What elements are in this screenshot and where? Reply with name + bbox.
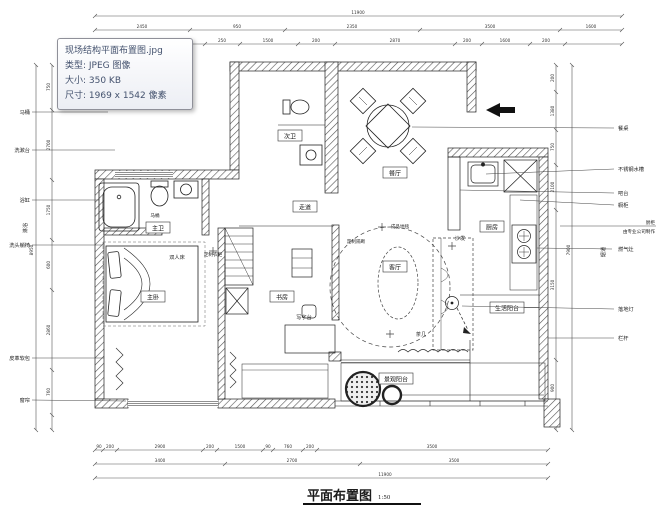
dim: 200 — [463, 38, 471, 43]
label-tea-table: 茶几 — [416, 330, 426, 338]
left-annotations: 马桶 洗漱台 浴缸 洗头躺椅 皮革软包 窗帘 淋浴 — [9, 108, 126, 404]
svg-text:厨房: 厨房 — [486, 224, 498, 232]
tooltip-size: 大小: 350 KB — [65, 74, 185, 89]
dimensions-left-text: 750 2700 1750 600 2860 760 8950 — [29, 83, 51, 396]
room-label-second-bath: 次卫 — [278, 130, 302, 141]
dim-top-overall: 11900 — [351, 10, 365, 15]
walls — [95, 62, 560, 427]
file-info-tooltip: 现场结构平面布置图.jpg 类型: JPEG 图像 大小: 350 KB 尺寸:… — [57, 38, 193, 110]
dim: 3500 — [449, 458, 460, 463]
label-finished-rug: 成品地毯 — [391, 223, 410, 230]
entry-arrow-icon — [486, 103, 515, 117]
tooltip-type: 类型: JPEG 图像 — [65, 59, 185, 74]
drawing-title: 平面布置图 1:50 — [303, 488, 421, 505]
title-scale: 1:50 — [378, 495, 391, 501]
dimensions-right — [554, 63, 574, 432]
dim: 2700 — [287, 458, 298, 463]
dim: 90 — [265, 444, 271, 449]
annotation-leather-padding: 皮革软包 — [9, 354, 30, 362]
svg-text:书房: 书房 — [276, 294, 288, 302]
annotation-hair-wash-chair: 洗头躺椅 — [9, 241, 30, 249]
svg-text:次卫: 次卫 — [284, 133, 296, 141]
dim: 3400 — [155, 458, 166, 463]
svg-text:生活阳台: 生活阳台 — [495, 305, 519, 313]
dim: 200 — [306, 444, 314, 449]
dim-right-overall: 7900 — [566, 244, 571, 255]
svg-text:客厅: 客厅 — [389, 264, 401, 272]
dim: 3150 — [550, 279, 555, 290]
dim: 3500 — [427, 444, 438, 449]
dim: 1600 — [586, 24, 597, 29]
annotation-toilet: 马桶 — [20, 108, 30, 116]
dim: 760 — [284, 444, 292, 449]
dim: 2700 — [46, 139, 51, 150]
study-furniture — [242, 249, 335, 398]
bed-symbol — [103, 242, 205, 326]
svg-text:景观阳台: 景观阳台 — [384, 376, 408, 384]
dim: 200 — [542, 38, 550, 43]
annotation-gas-stove: 燃气灶 — [618, 245, 634, 253]
room-label-corridor: 走道 — [293, 201, 317, 212]
annotation-washstand: 洗漱台 — [14, 146, 30, 154]
windows — [115, 171, 548, 407]
dim: 760 — [46, 388, 51, 396]
dim: 200 — [206, 444, 214, 449]
dimensions-bottom — [93, 448, 550, 480]
room-label-living: 客厅 — [383, 261, 407, 272]
dim: 200 — [550, 74, 555, 82]
dim: 2860 — [46, 324, 51, 335]
annotation-shower: 淋浴 — [21, 222, 29, 233]
dim: 900 — [550, 384, 555, 392]
annotation-note-line2: 由专业公司制作 — [623, 228, 656, 235]
room-label-master-bath: 主卫 — [146, 222, 170, 233]
label-sofa: 沙发 — [455, 234, 465, 242]
tooltip-filename: 现场结构平面布置图.jpg — [65, 44, 185, 59]
dim: 950 — [233, 24, 241, 29]
stove-symbol — [512, 225, 536, 263]
bar-counter-symbol — [448, 157, 460, 230]
title-underline — [303, 503, 421, 505]
dimensions-bottom-text: 90 200 2900 200 1500 90 760 200 3500 340… — [96, 444, 459, 477]
room-label-kitchen: 厨房 — [480, 221, 504, 232]
dim: 200 — [312, 38, 320, 43]
dim: 2350 — [347, 24, 358, 29]
cabinet-symbol — [292, 249, 312, 277]
annotation-bathtub: 浴缸 — [20, 196, 30, 204]
dim: 2450 — [137, 24, 148, 29]
svg-text:餐厅: 餐厅 — [389, 170, 401, 178]
dim: 90 — [96, 444, 102, 449]
room-label-study: 书房 — [270, 291, 294, 302]
coffee-table-symbol — [378, 247, 418, 319]
annotation-curtain: 窗帘 — [20, 396, 30, 404]
dim: 3500 — [485, 24, 496, 29]
svg-text:主卧: 主卧 — [147, 294, 159, 302]
label-custom-wardrobe: 定制衣柜 — [204, 251, 223, 258]
room-labels: 主卫 次卫 走道 餐厅 客厅 书房 主卧 厨房 — [141, 130, 539, 384]
floorplan-viewer: 11900 2450 950 2350 3500 1600 1350 950 2… — [0, 0, 660, 517]
room-label-view-balcony: 景观阳台 — [379, 373, 413, 384]
svg-text:主卫: 主卫 — [152, 225, 164, 233]
dim: 1600 — [500, 38, 511, 43]
rug-symbol — [330, 227, 450, 347]
dimensions-left — [34, 63, 54, 432]
balcony-items — [341, 363, 545, 406]
basin-symbol — [174, 181, 198, 198]
annotation-flue: 烟道 — [599, 247, 607, 257]
title-text: 平面布置图 — [307, 488, 372, 504]
dim: 2870 — [390, 38, 401, 43]
annotation-note-line1: 厨柜 — [646, 219, 656, 226]
dimensions-right-text: 200 1380 750 2100 3150 900 7900 — [550, 74, 571, 392]
annotation-dining-table: 餐桌 — [618, 124, 628, 132]
wardrobe-symbol — [225, 228, 253, 314]
label-writing-desk: 写字台 — [296, 313, 312, 321]
annotation-railing: 栏杆 — [618, 334, 628, 342]
label-double-bed: 双人床 — [169, 253, 185, 261]
room-label-master-bedroom: 主卧 — [141, 291, 165, 302]
dim: 250 — [218, 38, 226, 43]
dim: 2100 — [550, 181, 555, 192]
annotation-floor-lamp: 落地灯 — [618, 305, 634, 313]
dim: 750 — [46, 83, 51, 91]
tooltip-dimensions: 尺寸: 1969 x 1542 像素 — [65, 89, 185, 104]
dim: 200 — [106, 444, 114, 449]
dim: 750 — [550, 143, 555, 151]
dining-table-symbol — [350, 88, 425, 163]
dim-bottom-overall: 11900 — [378, 472, 392, 477]
svg-text:走道: 走道 — [299, 204, 311, 212]
annotation-cabinet: 橱柜 — [618, 201, 628, 209]
dim: 600 — [46, 261, 51, 269]
annotation-bar-counter: 吧台 — [618, 189, 628, 197]
annotation-stainless-sink: 不锈钢水槽 — [618, 165, 644, 173]
dim: 1380 — [550, 105, 555, 116]
label-custom-partition: 定制隔断 — [347, 238, 366, 245]
dim: 1500 — [235, 444, 246, 449]
desk-symbol — [285, 325, 335, 353]
room-label-dining: 餐厅 — [383, 167, 407, 178]
label-toilet: 马桶 — [150, 212, 160, 219]
dim: 1500 — [263, 38, 274, 43]
dim: 1750 — [46, 204, 51, 215]
dim: 2900 — [155, 444, 166, 449]
plant-symbol — [346, 372, 380, 406]
